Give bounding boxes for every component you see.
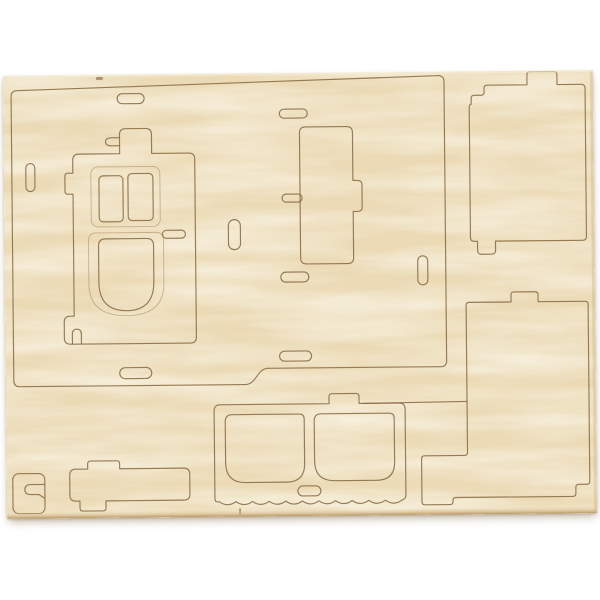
mark-top-edge-notch [96,77,103,80]
cut-lines-svg [3,70,597,519]
product-photo [0,0,600,600]
plywood-sheet [3,70,597,519]
